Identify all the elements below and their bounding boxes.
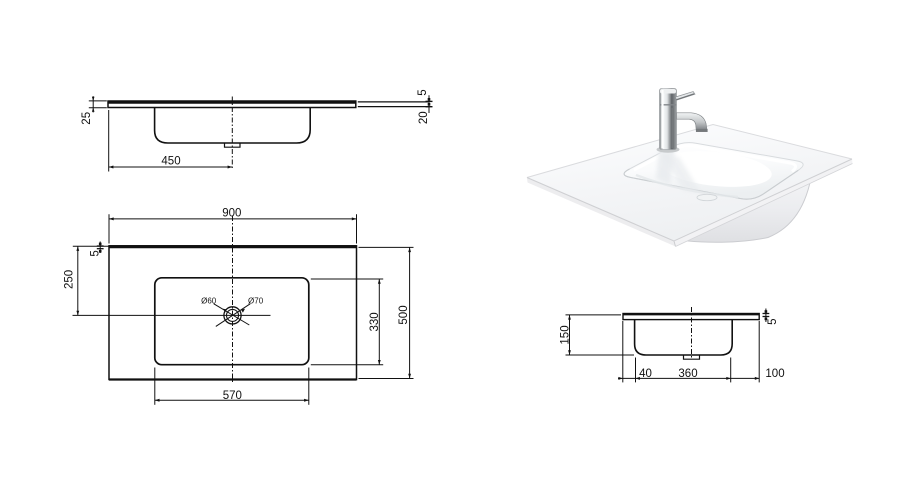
svg-text:5: 5 — [767, 318, 779, 324]
svg-text:100: 100 — [765, 368, 784, 380]
svg-text:150: 150 — [559, 325, 571, 344]
svg-text:Ø70: Ø70 — [248, 296, 264, 305]
svg-text:25: 25 — [81, 112, 93, 125]
svg-text:360: 360 — [678, 368, 697, 380]
svg-text:40: 40 — [639, 368, 652, 380]
svg-text:330: 330 — [369, 312, 381, 331]
svg-text:450: 450 — [161, 155, 180, 167]
svg-text:900: 900 — [222, 208, 241, 220]
svg-text:20: 20 — [418, 111, 430, 124]
svg-text:Ø60: Ø60 — [201, 296, 217, 305]
svg-text:500: 500 — [398, 305, 410, 324]
svg-text:570: 570 — [223, 390, 242, 402]
svg-text:250: 250 — [64, 270, 76, 289]
svg-text:5: 5 — [89, 250, 101, 256]
svg-text:5: 5 — [417, 89, 429, 95]
